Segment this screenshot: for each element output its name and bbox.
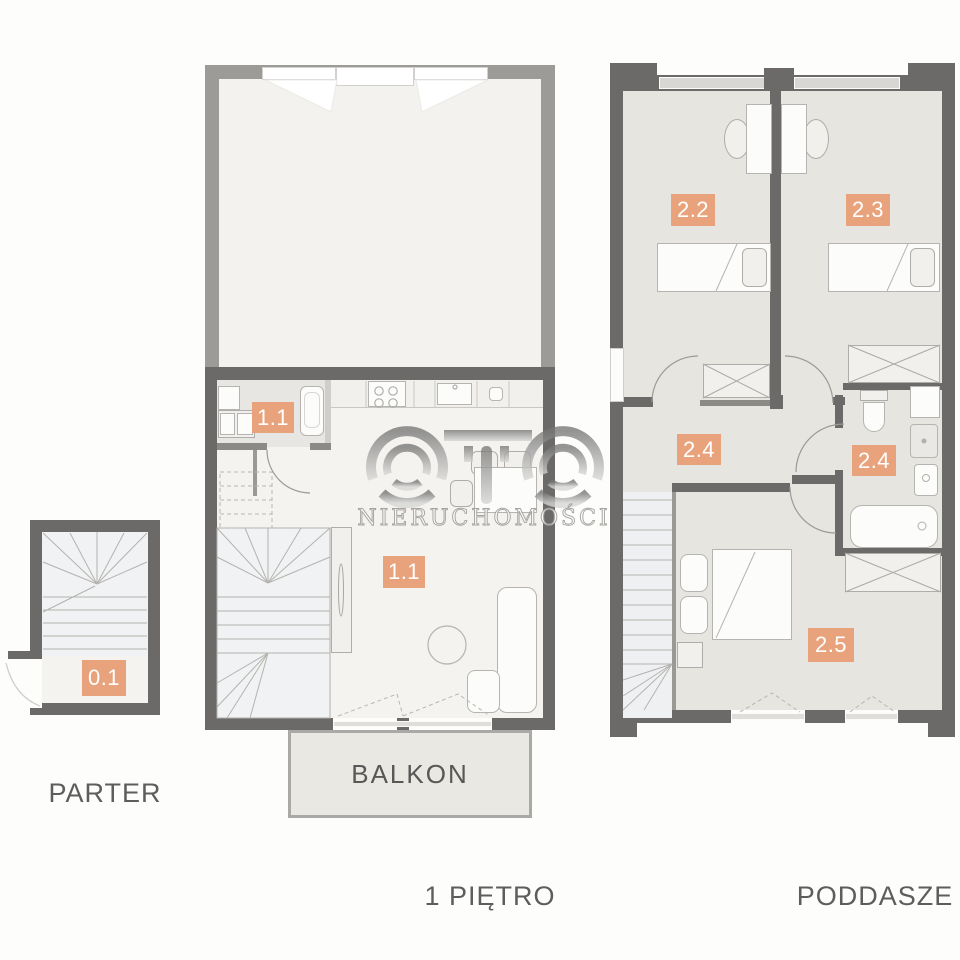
nightstand-1 <box>680 554 708 592</box>
attic-bottom-wall-2 <box>805 710 845 723</box>
wardrobe-2-3 <box>848 345 940 383</box>
sofa-seat <box>467 670 500 713</box>
oto-ring-left <box>371 431 443 503</box>
attic-gable-window <box>610 348 624 402</box>
upper-window-left <box>262 67 336 80</box>
wardrobe-hall <box>703 364 770 398</box>
first-floor-staircase <box>217 528 330 718</box>
first-floor-title: 1 PIĘTRO <box>410 881 570 915</box>
nightstand-2 <box>680 596 708 634</box>
room-badge-2-5: 2.5 <box>808 628 854 662</box>
attic-staircase <box>623 492 672 718</box>
attic-bedroom-main-wall-2 <box>792 475 835 484</box>
room-badge-first-floor-bath: 1.1 <box>252 402 294 433</box>
upper-window-center <box>336 67 414 86</box>
stove <box>368 381 406 407</box>
attic-title: PODDASZE <box>775 881 960 915</box>
first-floor-upper-room <box>219 79 541 367</box>
first-floor-left-wall <box>205 380 217 730</box>
sofa-chaise <box>497 587 537 713</box>
attic-window-sill-right <box>845 713 898 720</box>
bath-sink <box>910 424 938 458</box>
upper-window-right <box>414 67 488 80</box>
attic-hall-wall-thin <box>700 400 770 406</box>
washbasin <box>220 413 235 435</box>
pillow-2-2 <box>742 248 767 287</box>
attic-bath-wall-top-seg <box>835 395 843 428</box>
toilet-bowl <box>863 402 885 432</box>
tall-cabinet <box>331 527 352 653</box>
balcony-label: BALKON <box>351 759 469 790</box>
attic-stair-divider <box>672 492 676 710</box>
skylight-right <box>794 77 900 89</box>
desk-right <box>781 104 807 174</box>
bathroom-window <box>218 386 240 410</box>
wardrobe-2-5 <box>845 553 941 592</box>
oto-letter-t <box>444 430 532 504</box>
parter-title: PARTER <box>25 778 185 810</box>
attic-bath-wall-bottom-seg <box>835 470 843 556</box>
watermark-subtitle: NIERUCHOMOŚCI <box>352 506 616 536</box>
attic-divider-nub <box>770 395 783 409</box>
floorplan-canvas: 0.1 PARTER <box>0 0 960 960</box>
parter-door-leaf <box>8 651 42 659</box>
attic-right-wall <box>942 63 955 730</box>
room-badge-2-2: 2.2 <box>671 194 715 226</box>
attic-hall-wall-left <box>623 397 653 407</box>
kitchen-fixture <box>489 387 503 401</box>
first-floor-bottom-wall-left <box>205 718 333 730</box>
skylight-left <box>659 77 765 89</box>
attic-corner-bottom-right <box>928 710 955 737</box>
pillow-2-3 <box>910 248 935 287</box>
room-badge-parter-entry: 0.1 <box>82 660 126 696</box>
desk-left <box>746 104 772 174</box>
parter-door-opening <box>30 658 42 708</box>
room-badge-2-3: 2.3 <box>846 194 890 226</box>
parter-staircase <box>42 532 148 656</box>
room-badge-2-4-bath: 2.4 <box>852 445 896 476</box>
first-floor-bottom-wall-right <box>492 718 555 730</box>
watermark-logo <box>360 420 610 520</box>
bed-2-5 <box>712 549 792 640</box>
bathroom-wall-seg2 <box>310 443 331 450</box>
kitchen-sink <box>437 383 472 405</box>
toilet-tank <box>860 390 888 401</box>
room-badge-2-4-hall: 2.4 <box>677 434 721 465</box>
oto-ring-right <box>527 431 599 503</box>
bathtub-attic <box>850 505 938 548</box>
bench-2-5 <box>677 642 703 668</box>
first-floor-top-wall <box>205 367 555 380</box>
room-badge-first-floor-living: 1.1 <box>383 556 425 588</box>
bathroom-wall-seg1 <box>217 443 267 450</box>
attic-window-sill-left <box>731 713 805 720</box>
attic-bedroom-main-wall <box>672 483 790 492</box>
bath-shelf <box>910 386 940 418</box>
bathtub-small-inner <box>304 392 320 428</box>
washing-machine <box>237 413 253 435</box>
balcony-door-sill <box>333 721 492 727</box>
hall-wall-stub <box>253 450 257 496</box>
bath-basin <box>914 464 938 496</box>
balcony: BALKON <box>288 730 532 818</box>
